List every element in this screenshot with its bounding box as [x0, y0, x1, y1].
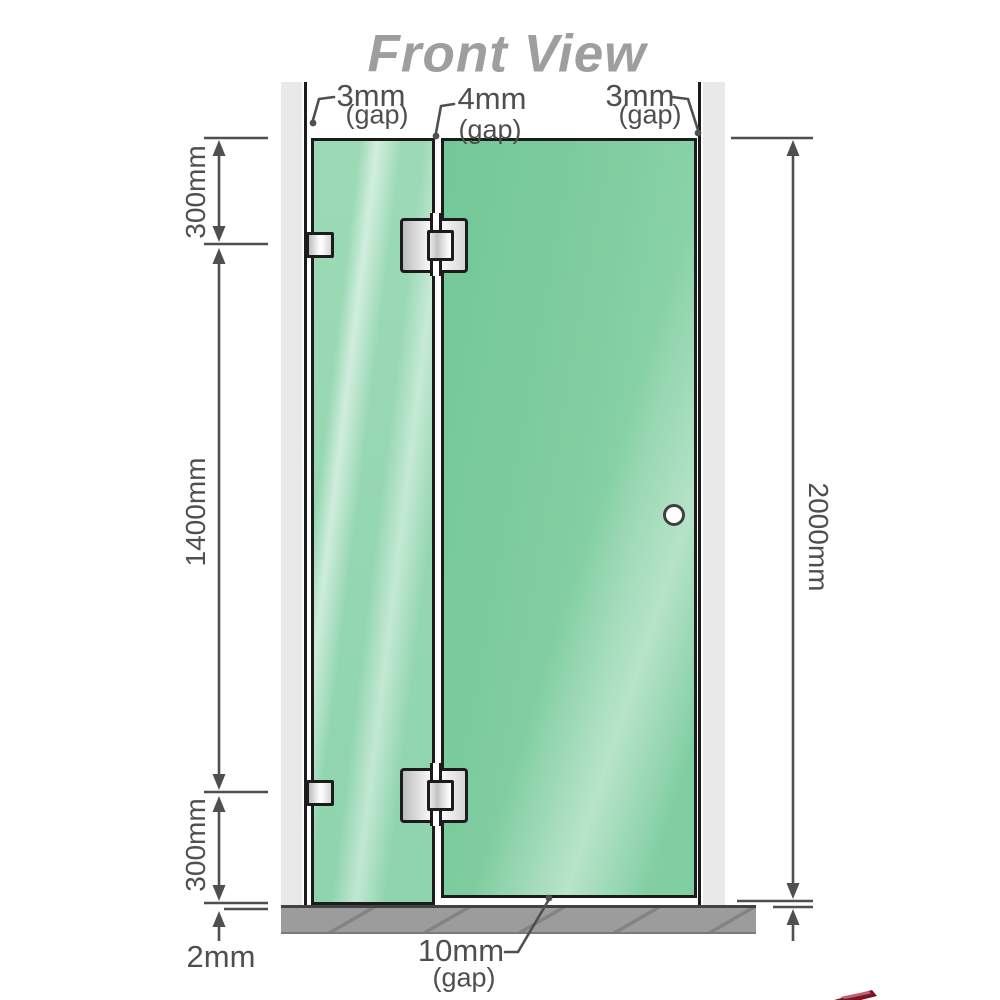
left-wall	[281, 82, 302, 905]
dim-label-2000mm: 2000mm	[802, 483, 834, 592]
right-ticks	[731, 138, 813, 907]
hinge-top-knuckle	[427, 230, 454, 261]
gap-note-bottom: (gap)	[432, 963, 495, 994]
dim-label-1400mm: 1400mm	[180, 458, 212, 567]
door-knob	[663, 504, 685, 526]
leader-gap-middle	[436, 104, 454, 133]
gap-note-middle: (gap)	[458, 115, 521, 146]
floor-base	[281, 905, 756, 934]
dim-label-bottom-300mm: 300mm	[180, 798, 212, 891]
right-wall-edge-line	[698, 82, 701, 905]
gap-note-right: (gap)	[618, 100, 681, 131]
red-corner-mark	[834, 990, 877, 1000]
leader-gap-left	[313, 97, 334, 120]
wall-bracket-bottom	[306, 780, 334, 806]
door-panel-glass	[441, 138, 697, 898]
hinge-bottom-knuckle	[427, 780, 454, 811]
front-view-diagram: Front View	[0, 0, 1000, 1000]
gap-label-middle: 4mm	[458, 81, 527, 117]
wall-bracket-top	[306, 232, 334, 258]
dim-label-2mm: 2mm	[187, 939, 256, 975]
diagram-title: Front View	[368, 24, 647, 85]
dim-label-top-300mm: 300mm	[180, 145, 212, 238]
left-ticks	[204, 138, 268, 909]
right-wall	[703, 82, 725, 905]
gap-note-left: (gap)	[345, 100, 408, 131]
